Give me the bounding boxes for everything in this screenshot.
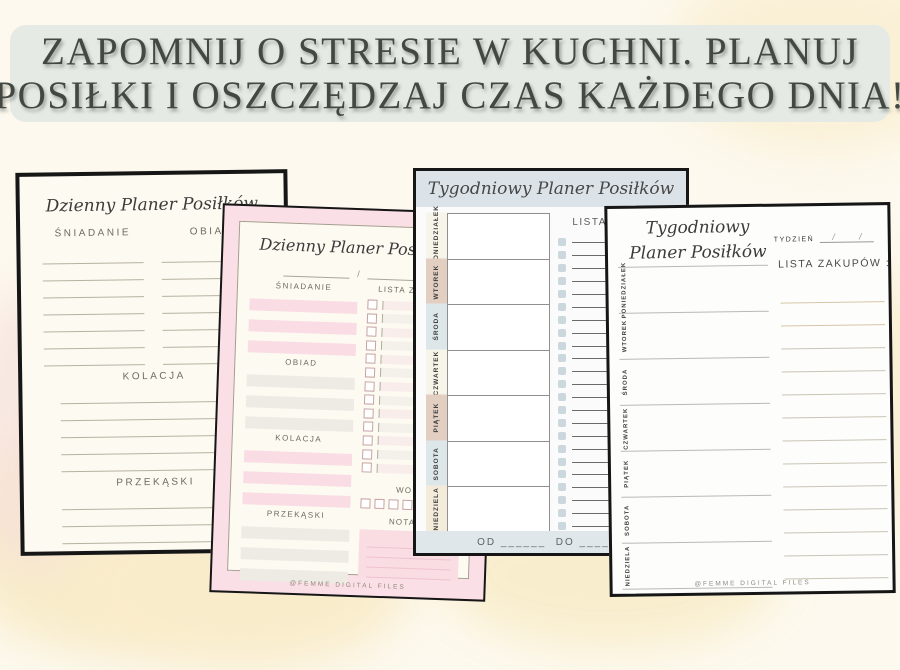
page-title-line-1: Tygodniowy bbox=[607, 214, 787, 241]
week-grid: PONIEDZIAŁEK WTOREK ŚRODA CZWARTEK PIĄTE… bbox=[618, 265, 772, 590]
week-blank-line: / / bbox=[820, 231, 874, 243]
checkbox-icon bbox=[364, 395, 374, 405]
ruled-line bbox=[44, 348, 145, 366]
day-row: CZWARTEK bbox=[426, 350, 550, 396]
day-box bbox=[447, 350, 550, 397]
checkbox-icon bbox=[366, 327, 376, 337]
stripe-rows bbox=[245, 374, 355, 432]
day-tab-monday: PONIEDZIAŁEK bbox=[426, 213, 447, 259]
breakfast-column: ŚNIADANIE bbox=[42, 227, 145, 366]
day-tab-sunday: NIEDZIELA bbox=[426, 486, 447, 532]
day-tab-thursday: CZWARTEK bbox=[620, 407, 633, 449]
checkbox-icon bbox=[558, 277, 566, 285]
stripe-rows bbox=[240, 526, 350, 584]
checkbox-icon bbox=[558, 458, 566, 466]
day-row: WTOREK bbox=[619, 311, 770, 359]
date-blank-line bbox=[283, 267, 349, 278]
ruled-line bbox=[43, 297, 144, 315]
checkbox-icon bbox=[365, 367, 375, 377]
stripe-row bbox=[244, 450, 352, 466]
stripe-row bbox=[248, 319, 356, 335]
meal-sections: ŚNIADANIE OBIAD KOLACJA PRZEKĄSKI bbox=[240, 280, 359, 588]
checkbox-icon bbox=[363, 422, 373, 432]
checkbox-icon bbox=[367, 299, 377, 309]
checkbox-icon bbox=[558, 367, 566, 375]
week-slash: / bbox=[859, 231, 862, 241]
checkbox-icon bbox=[367, 313, 377, 323]
shopping-list-label: LISTA ZAKUPÓW : bbox=[778, 257, 884, 270]
checkbox-icon bbox=[374, 499, 384, 509]
note-line bbox=[366, 568, 450, 581]
checkbox-icon bbox=[402, 500, 412, 510]
checkbox-icon bbox=[558, 329, 566, 337]
stripe-row bbox=[246, 395, 354, 411]
week-grid: PONIEDZIAŁEK WTOREK ŚRODA CZWARTEK PIĄTE… bbox=[426, 213, 550, 532]
day-tab-saturday: SOBOTA bbox=[426, 441, 447, 487]
checkbox-icon bbox=[558, 470, 566, 478]
day-tab-tuesday: WTOREK bbox=[619, 320, 631, 353]
day-box bbox=[447, 213, 550, 260]
headline-banner: ZAPOMNIJ O STRESIE W KUCHNI. PLANUJ POSI… bbox=[10, 25, 890, 122]
day-tab-monday: PONIEDZIAŁEK bbox=[618, 262, 631, 319]
week-label: TYDZIEŃ bbox=[774, 236, 815, 244]
dinner-section: KOLACJA bbox=[242, 432, 353, 512]
ruled-line bbox=[783, 440, 887, 464]
stripe-rows bbox=[248, 298, 358, 356]
checkbox-icon bbox=[558, 509, 566, 517]
checkbox-icon bbox=[558, 496, 566, 504]
day-tab-tuesday: WTOREK bbox=[426, 259, 447, 305]
checkbox-icon bbox=[558, 522, 566, 530]
day-row: CZWARTEK bbox=[620, 403, 771, 451]
day-box bbox=[447, 395, 550, 442]
week-field: TYDZIEŃ / / bbox=[774, 231, 874, 243]
day-row: SOBOTA bbox=[621, 495, 772, 543]
lunch-section: OBIAD bbox=[245, 356, 356, 436]
day-tab-friday: PIĄTEK bbox=[426, 395, 447, 441]
day-tab-saturday: SOBOTA bbox=[621, 505, 633, 536]
checkbox-icon bbox=[366, 340, 376, 350]
day-row: WTOREK bbox=[426, 259, 550, 305]
checkbox-icon bbox=[558, 393, 566, 401]
ruled-line bbox=[42, 246, 143, 264]
shopping-list-lines bbox=[780, 279, 888, 579]
stripe-row bbox=[243, 471, 351, 487]
stripe-row bbox=[242, 492, 350, 508]
stripe-rows bbox=[242, 450, 352, 508]
headline-line-1: ZAPOMNIJ O STRESIE W KUCHNI. PLANUJ bbox=[41, 30, 859, 74]
stripe-row bbox=[249, 298, 357, 314]
week-slash: / bbox=[832, 232, 835, 242]
checkbox-icon bbox=[558, 238, 566, 246]
checkbox-icon bbox=[365, 354, 375, 364]
day-row: PONIEDZIAŁEK bbox=[426, 213, 550, 259]
checkbox-icon bbox=[558, 251, 566, 259]
ruled-line bbox=[782, 417, 886, 441]
checkbox-icon bbox=[363, 408, 373, 418]
day-row: SOBOTA bbox=[426, 441, 550, 487]
ruled-line bbox=[784, 509, 888, 533]
day-box bbox=[447, 259, 550, 306]
day-row: PIĄTEK bbox=[621, 449, 772, 497]
ruled-line bbox=[43, 263, 144, 281]
page-title-line-2: Planer Posiłków bbox=[608, 239, 788, 266]
ruled-line bbox=[781, 302, 885, 326]
day-row: ŚRODA bbox=[619, 357, 770, 405]
page-title: Tygodniowy Planer Posiłków bbox=[607, 214, 788, 266]
stripe-row bbox=[248, 340, 356, 356]
checkbox-icon bbox=[363, 435, 373, 445]
stripe-row bbox=[247, 374, 355, 390]
breakfast-label: ŚNIADANIE bbox=[250, 280, 358, 293]
ruled-line bbox=[781, 348, 885, 372]
day-box bbox=[447, 486, 550, 533]
page-title: Tygodniowy Planer Posiłków bbox=[428, 179, 674, 199]
ruled-line bbox=[784, 532, 888, 556]
ruled-lines bbox=[42, 246, 145, 366]
day-tab-friday: PIĄTEK bbox=[621, 460, 633, 488]
checkbox-icon bbox=[558, 342, 566, 350]
weekly-planner-white-page: Tygodniowy Planer Posiłków TYDZIEŃ / / L… bbox=[604, 202, 895, 597]
breakfast-section: ŚNIADANIE bbox=[248, 280, 359, 360]
ruled-line bbox=[780, 279, 884, 303]
ruled-line bbox=[44, 331, 145, 349]
checkbox-icon bbox=[362, 462, 372, 472]
ruled-line bbox=[782, 371, 886, 395]
day-box bbox=[447, 441, 550, 488]
checkbox-icon bbox=[558, 483, 566, 491]
ruled-line bbox=[781, 325, 885, 349]
checkbox-icon bbox=[388, 499, 398, 509]
ruled-line bbox=[783, 463, 887, 487]
checkbox-icon bbox=[558, 354, 566, 362]
date-separator: / bbox=[357, 269, 360, 279]
checkbox-icon bbox=[558, 419, 566, 427]
day-tab-sunday: NIEDZIELA bbox=[622, 546, 635, 587]
stripe-row bbox=[245, 416, 353, 432]
ruled-line bbox=[784, 555, 888, 579]
checkbox-icon bbox=[558, 303, 566, 311]
ruled-line bbox=[783, 486, 887, 510]
checkbox-icon bbox=[558, 264, 566, 272]
breakfast-label: ŚNIADANIE bbox=[42, 227, 143, 239]
page-header: Tygodniowy Planer Posiłków bbox=[416, 171, 686, 207]
checkbox-icon bbox=[364, 381, 374, 391]
checkbox-icon bbox=[558, 290, 566, 298]
ruled-line bbox=[43, 314, 144, 332]
checkbox-icon bbox=[360, 498, 370, 508]
day-tab-wednesday: ŚRODA bbox=[620, 369, 632, 396]
day-tab-wednesday: ŚRODA bbox=[426, 304, 447, 350]
ruled-line bbox=[782, 394, 886, 418]
day-row: PIĄTEK bbox=[426, 395, 550, 441]
day-row: PONIEDZIAŁEK bbox=[618, 265, 769, 313]
checkbox-icon bbox=[362, 449, 372, 459]
snacks-section: PRZEKĄSKI bbox=[240, 508, 351, 588]
stripe-row bbox=[240, 547, 348, 563]
ruled-line bbox=[43, 280, 144, 298]
checkbox-icon bbox=[558, 316, 566, 324]
checkbox-icon bbox=[558, 445, 566, 453]
day-row: ŚRODA bbox=[426, 304, 550, 350]
checkbox-icon bbox=[558, 406, 566, 414]
checkbox-icon bbox=[558, 432, 566, 440]
checkbox-icon bbox=[558, 380, 566, 388]
day-tab-thursday: CZWARTEK bbox=[426, 350, 447, 396]
headline-line-2: POSIŁKI I OSZCZĘDZAJ CZAS KAŻDEGO DNIA! bbox=[0, 74, 900, 118]
stripe-row bbox=[241, 526, 349, 542]
day-box bbox=[447, 304, 550, 351]
day-row: NIEDZIELA bbox=[426, 486, 550, 532]
